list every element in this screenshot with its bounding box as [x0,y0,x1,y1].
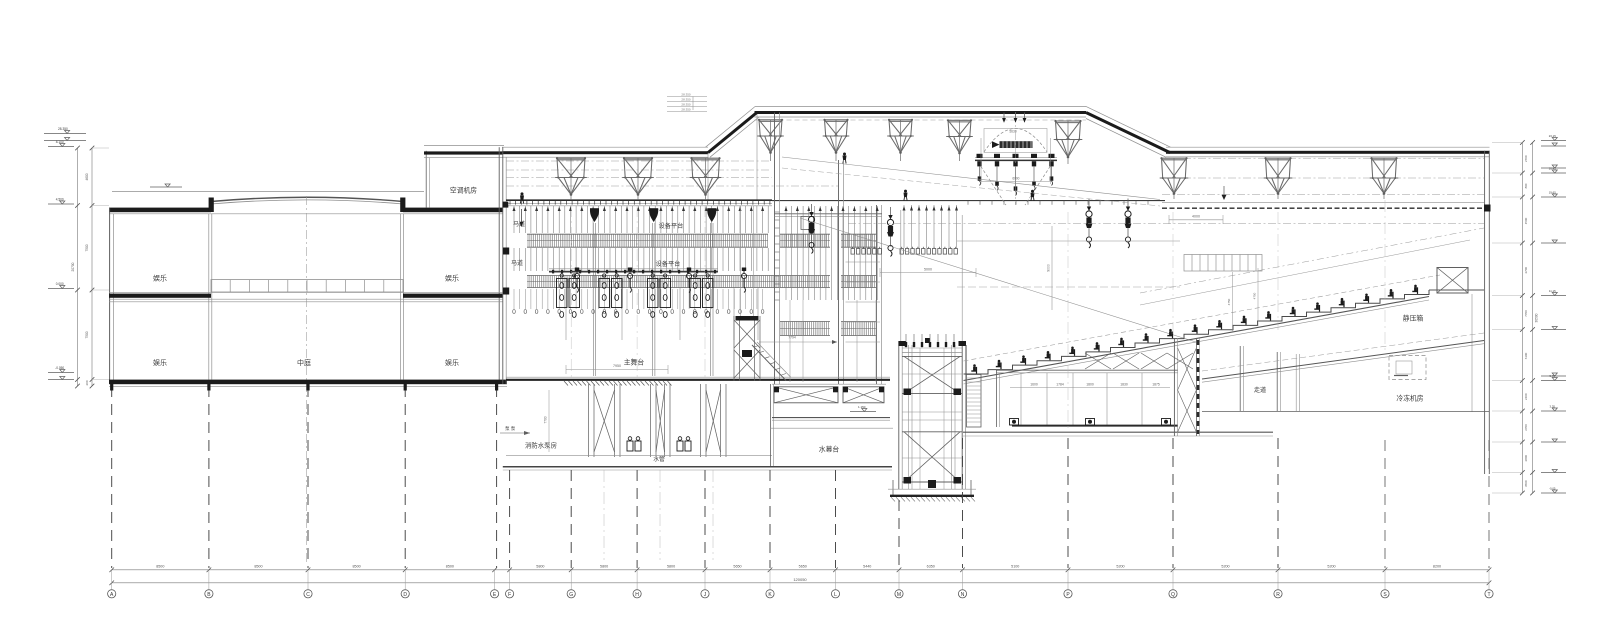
svg-text:20.45: 20.45 [1549,166,1556,170]
svg-text:6350: 6350 [927,564,935,568]
svg-text:8200: 8200 [1433,564,1441,568]
svg-text:5200: 5200 [1116,564,1124,568]
svg-text:7500: 7500 [85,244,89,251]
svg-text:娱乐: 娱乐 [445,274,459,283]
svg-text:7794: 7794 [788,336,796,340]
svg-text:D: D [403,592,407,598]
svg-text:T: T [1487,592,1490,598]
svg-text:5800: 5800 [667,564,675,568]
svg-text:N: N [961,592,965,598]
svg-text:5000: 5000 [924,268,932,272]
svg-text:4600: 4600 [85,173,89,180]
svg-text:1875: 1875 [1152,383,1160,387]
svg-text:F: F [508,592,511,598]
svg-text:中庭: 中庭 [297,358,311,367]
svg-text:8500: 8500 [156,564,164,568]
svg-text:7500: 7500 [85,331,89,338]
svg-text:2400: 2400 [1524,393,1528,400]
svg-text:8500: 8500 [254,564,262,568]
svg-text:5440: 5440 [863,564,871,568]
svg-text:-0.050: -0.050 [55,366,64,370]
svg-text:5.75: 5.75 [1550,374,1556,378]
svg-text:3.35: 3.35 [1550,404,1556,408]
svg-text:7700: 7700 [1524,310,1528,317]
svg-text:5800: 5800 [536,564,544,568]
svg-text:5200: 5200 [1327,564,1335,568]
svg-text:消防水泵房: 消防水泵房 [525,441,557,450]
svg-text:200: 200 [85,380,89,385]
svg-text:娱乐: 娱乐 [153,274,167,283]
svg-text:30500: 30500 [1535,313,1539,322]
svg-text:H: H [635,592,639,598]
svg-text:5100: 5100 [1011,564,1019,568]
svg-text:11.15: 11.15 [1549,289,1556,293]
svg-text:800: 800 [1524,183,1528,188]
svg-text:4.500: 4.500 [56,197,64,201]
svg-text:1600: 1600 [1030,383,1038,387]
svg-text:6000: 6000 [1012,177,1019,181]
svg-text:1830: 1830 [1120,383,1128,387]
svg-text:Q: Q [1171,592,1175,598]
svg-text:28.350: 28.350 [681,103,691,107]
svg-text:1800: 1800 [1086,383,1094,387]
svg-text:4750: 4750 [1227,298,1231,305]
svg-text:5650: 5650 [733,564,741,568]
svg-text:5200: 5200 [1221,564,1229,568]
svg-text:主舞台: 主舞台 [624,358,645,367]
svg-text:C: C [306,592,310,598]
svg-text:L: L [834,592,837,598]
svg-text:泵 泵: 泵 泵 [505,426,516,431]
svg-text:28.350: 28.350 [681,98,691,102]
svg-text:设备平台: 设备平台 [656,260,681,268]
svg-text:-0.05: -0.05 [1549,486,1556,490]
svg-text:娱乐: 娱乐 [445,358,459,367]
svg-text:120050: 120050 [793,577,807,582]
svg-text:水幕台: 水幕台 [819,445,840,454]
svg-text:娱乐: 娱乐 [153,358,167,367]
svg-text:2700: 2700 [1524,267,1528,274]
svg-text:8500: 8500 [446,564,454,568]
svg-text:23.15: 23.15 [1549,134,1556,138]
svg-text:设备平台: 设备平台 [659,222,684,230]
svg-text:28.350: 28.350 [58,127,68,131]
svg-text:马道: 马道 [513,220,525,228]
svg-text:马道: 马道 [511,259,523,267]
svg-text:28.350: 28.350 [681,93,691,97]
svg-text:M: M [897,592,901,598]
svg-text:水管: 水管 [653,455,665,463]
svg-text:7700: 7700 [544,416,548,423]
svg-text:5650: 5650 [799,564,807,568]
svg-text:2700: 2700 [1524,424,1528,431]
svg-text:0.000: 0.000 [56,282,64,286]
svg-text:7950: 7950 [613,364,621,368]
svg-text:G: G [569,592,573,598]
svg-text:R: R [1276,592,1280,598]
svg-text:1784: 1784 [1056,383,1064,387]
svg-text:2800: 2800 [1524,455,1528,462]
svg-text:空调机房: 空调机房 [450,186,477,195]
svg-text:19.65: 19.65 [1549,190,1556,194]
svg-text:9000: 9000 [1047,264,1051,272]
svg-text:走道: 走道 [1254,386,1266,394]
svg-text:8500: 8500 [352,564,360,568]
svg-text:4500: 4500 [1524,217,1528,224]
svg-text:6100: 6100 [1524,352,1528,359]
svg-text:4000: 4000 [1192,215,1200,219]
svg-text:冷冻机房: 冷冻机房 [1396,394,1423,403]
svg-text:1.150: 1.150 [858,405,866,409]
svg-text:5800: 5800 [600,564,608,568]
svg-text:20700: 20700 [71,262,75,271]
svg-text:4750: 4750 [1253,292,1257,299]
svg-text:28.350: 28.350 [681,108,691,112]
svg-text:2700: 2700 [1524,155,1528,162]
svg-text:静压箱: 静压箱 [1403,314,1424,323]
svg-text:3500: 3500 [1524,480,1528,487]
